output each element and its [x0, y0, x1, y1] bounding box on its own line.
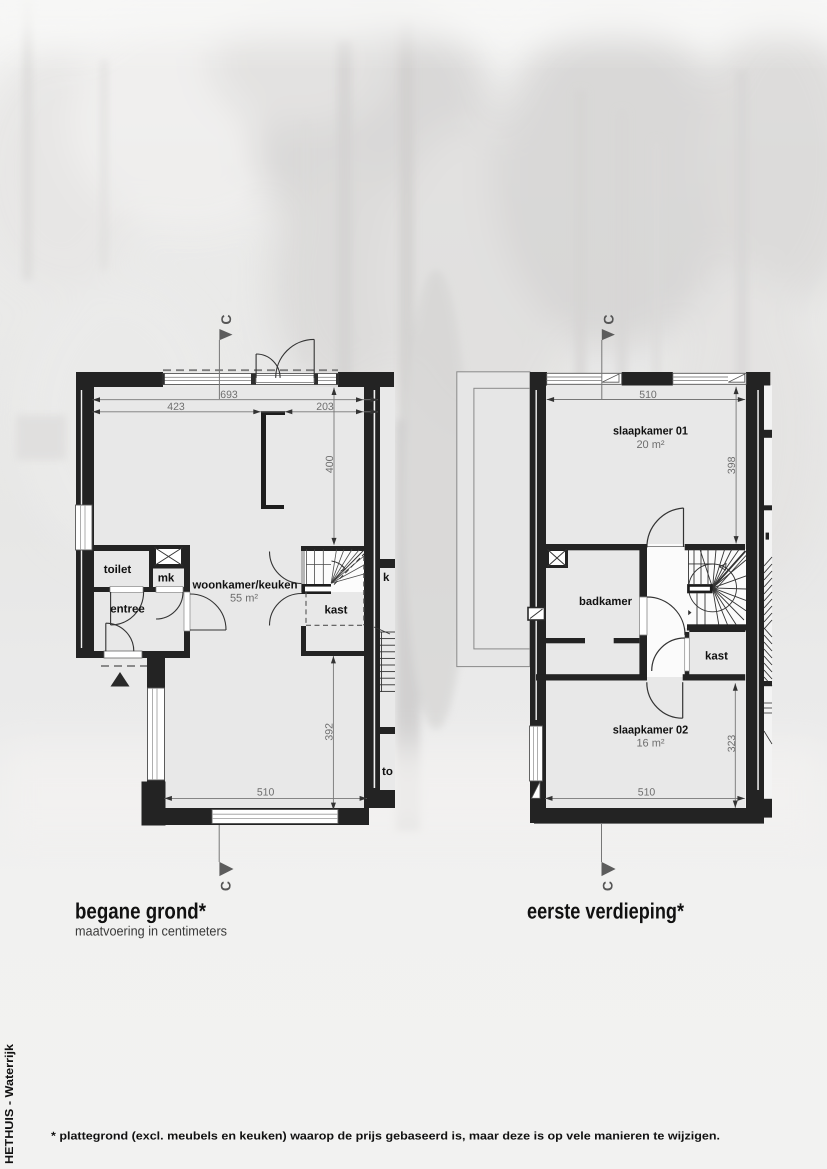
svg-text:slaapkamer 02: slaapkamer 02: [613, 725, 689, 737]
svg-text:eerste verdieping*: eerste verdieping*: [527, 899, 684, 924]
svg-text:693: 693: [220, 389, 238, 401]
svg-text:423: 423: [167, 401, 185, 413]
svg-text:kast: kast: [324, 605, 347, 617]
svg-text:toilet: toilet: [104, 564, 132, 576]
svg-text:400: 400: [324, 455, 336, 473]
svg-text:55 m²: 55 m²: [230, 593, 258, 605]
svg-text:HETHUIS - Waterrijk: HETHUIS - Waterrijk: [4, 1043, 16, 1164]
svg-text:slaapkamer 01: slaapkamer 01: [613, 426, 689, 438]
svg-text:C: C: [600, 881, 616, 891]
svg-text:begane grond*: begane grond*: [75, 899, 206, 924]
svg-text:kast: kast: [705, 651, 728, 663]
svg-text:392: 392: [324, 723, 336, 741]
svg-text:510: 510: [638, 787, 656, 799]
svg-text:k: k: [383, 572, 390, 584]
svg-text:510: 510: [639, 389, 657, 401]
svg-text:510: 510: [257, 787, 275, 799]
svg-text:maatvoering in centimeters: maatvoering in centimeters: [75, 924, 227, 939]
svg-text:16 m²: 16 m²: [636, 738, 664, 750]
svg-text:398: 398: [726, 456, 738, 474]
svg-text:20 m²: 20 m²: [636, 439, 664, 451]
svg-text:* plattegrond (excl. meubels e: * plattegrond (excl. meubels en keuken) …: [51, 1131, 720, 1143]
svg-text:323: 323: [726, 735, 738, 753]
svg-text:entree: entree: [110, 604, 145, 616]
svg-text:C: C: [601, 314, 617, 324]
svg-text:mk: mk: [158, 573, 175, 585]
svg-text:203: 203: [316, 401, 334, 413]
svg-text:badkamer: badkamer: [579, 596, 633, 608]
svg-text:C: C: [218, 881, 234, 891]
svg-text:C: C: [218, 314, 234, 324]
svg-text:to: to: [382, 766, 393, 778]
svg-text:woonkamer/keuken: woonkamer/keuken: [192, 580, 298, 592]
